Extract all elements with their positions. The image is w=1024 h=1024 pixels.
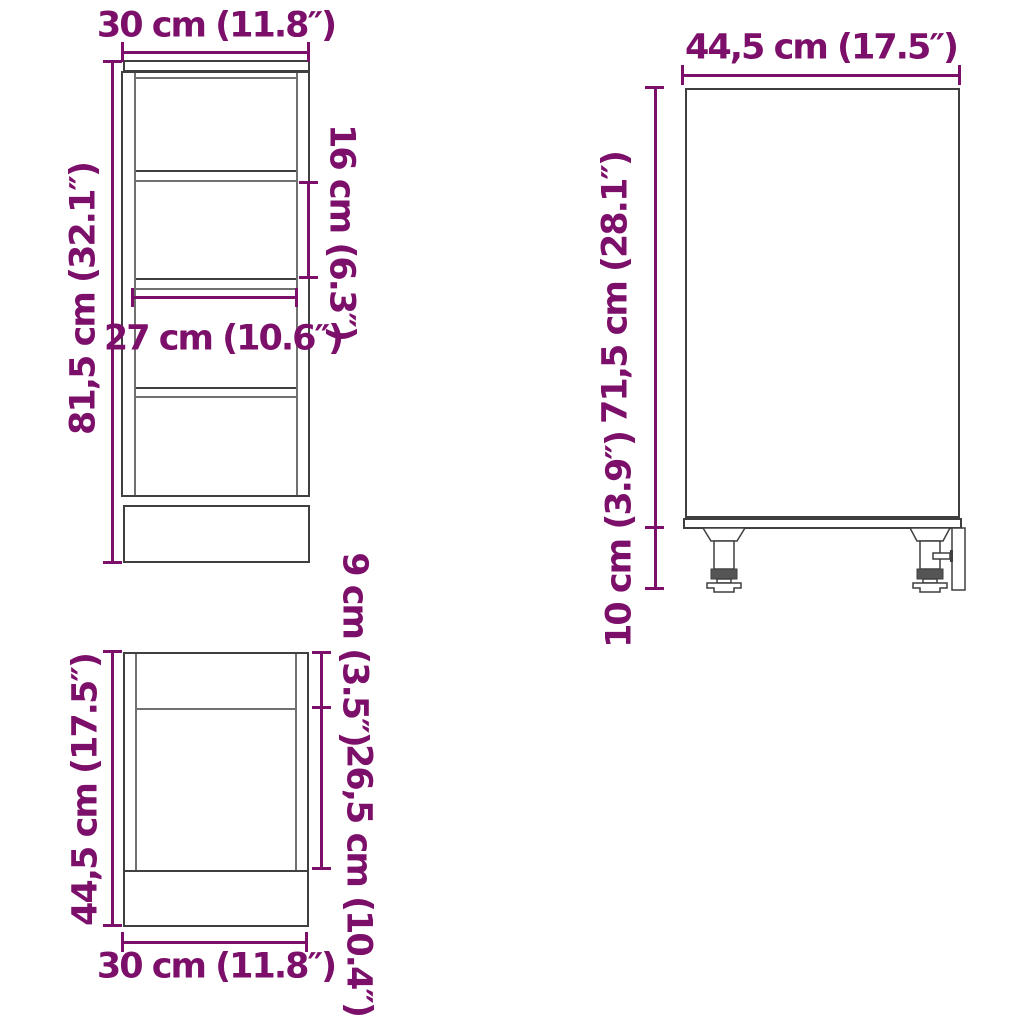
front-width-label: 30 cm (11.8″) [97, 9, 335, 44]
side-depth-dim-line [683, 74, 960, 77]
top-width-label: 30 cm (11.8″) [97, 950, 335, 985]
top-depth-dim-line [111, 652, 114, 927]
front-top-underside-line [136, 77, 296, 79]
top-view-outline [123, 652, 309, 927]
front-right-panel-line [296, 73, 298, 495]
side-depth-label: 44,5 cm (17.5″) [685, 31, 957, 66]
top-view-left-panel-line [135, 654, 137, 871]
inner-width-dim-tick-left [131, 288, 134, 307]
front-height-dim-line [111, 62, 114, 563]
top-right-dim-tick-3 [312, 867, 331, 870]
top-right-dim-line [320, 653, 323, 870]
top-middle-section-label: 26,5 cm (10.4″) [341, 744, 376, 1016]
side-leg-height-label: 10 cm (3.9″) [603, 432, 638, 648]
front-width-dim-line [123, 51, 310, 54]
front-leg-icon [701, 527, 747, 593]
back-leg-icon [906, 527, 968, 593]
side-depth-dim-tick-right [958, 65, 961, 85]
top-view-front-edge-line [136, 708, 296, 710]
side-height-dim-tick-middle [645, 526, 664, 529]
shelf-3-front-line [136, 396, 296, 398]
side-height-dim-tick-top [645, 86, 664, 89]
shelf-spacing-dim-tick-top [299, 181, 318, 184]
top-view-right-panel-line [295, 654, 297, 871]
shelf-3-top-line [136, 387, 296, 389]
shelf-spacing-label: 16 cm (6.3″) [324, 124, 359, 340]
shelf-2-front-line [136, 288, 296, 290]
top-front-section-label: 9 cm (3.5″) [337, 552, 372, 746]
inner-width-dim-line [133, 296, 298, 299]
dimension-diagram: 30 cm (11.8″) 81,5 cm (32.1″) 16 cm (6.3… [0, 0, 1024, 1024]
side-height-dim-line [654, 88, 657, 590]
front-height-dim-tick-top [103, 60, 122, 63]
side-height-dim-tick-bottom [645, 587, 664, 590]
front-height-label: 81,5 cm (32.1″) [67, 163, 102, 435]
side-depth-dim-tick-left [681, 65, 684, 85]
shelf-spacing-dim-line [307, 182, 310, 278]
side-body-height-label: 71,5 cm (28.1″) [599, 152, 634, 424]
inner-width-label: 27 cm (10.6″) [104, 322, 342, 357]
shelf-spacing-dim-tick-bottom [299, 276, 318, 279]
front-height-dim-tick-bottom [103, 561, 122, 564]
front-left-panel-line [134, 73, 136, 495]
front-plinth [123, 505, 310, 563]
top-right-dim-tick-1 [312, 651, 331, 654]
top-depth-label: 44,5 cm (17.5″) [69, 654, 104, 926]
inner-width-dim-tick-right [295, 288, 298, 307]
shelf-1-top-line [136, 170, 296, 172]
top-width-dim-line [123, 941, 308, 944]
top-right-dim-tick-2 [312, 706, 331, 709]
top-depth-dim-tick-bottom [103, 924, 122, 927]
side-body [685, 88, 960, 518]
top-view-back-edge-line [125, 870, 307, 872]
shelf-1-front-line [136, 180, 296, 182]
shelf-2-top-line [136, 278, 296, 280]
top-depth-dim-tick-top [103, 650, 122, 653]
front-body [121, 71, 310, 497]
